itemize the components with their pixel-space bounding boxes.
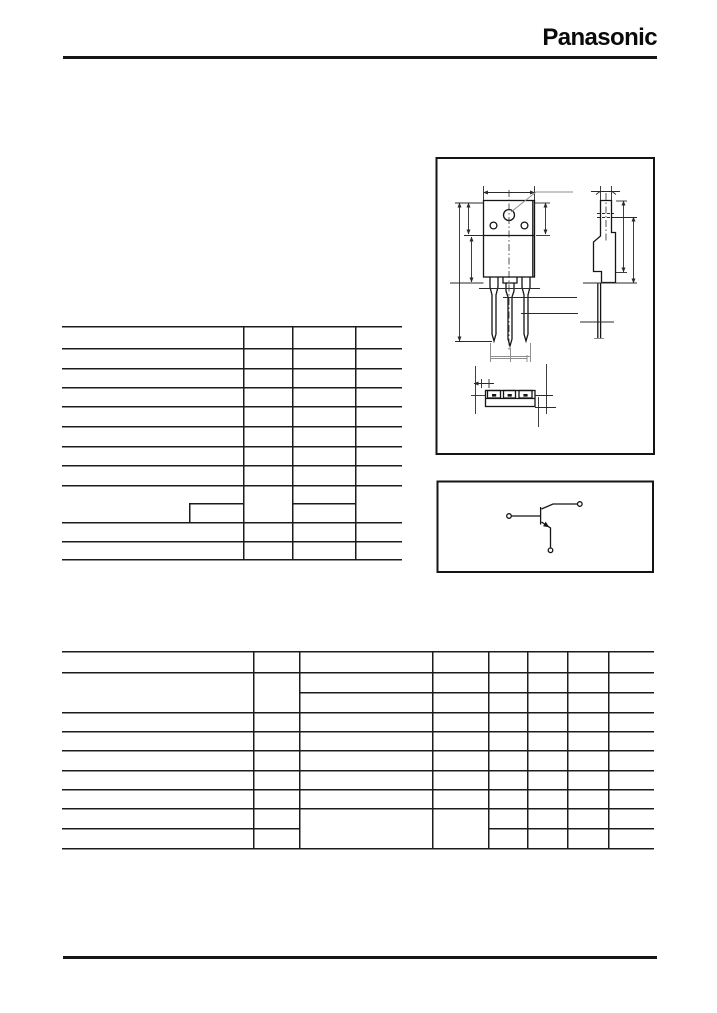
- datasheet-page: Panasonic: [0, 0, 717, 1013]
- lead-3: [522, 277, 530, 341]
- package-side-view: [580, 186, 637, 339]
- page-graphics: [0, 0, 717, 1013]
- schematic-border: [438, 482, 654, 573]
- package-body: [484, 201, 535, 278]
- absolute-maximum-ratings-table: [62, 327, 402, 560]
- collector-lead-line: [542, 504, 578, 509]
- base-terminal: [507, 514, 512, 519]
- electrical-characteristics-table: [62, 652, 654, 849]
- center-boss: [503, 277, 517, 283]
- package-bottom-view: [471, 355, 556, 427]
- emitter-terminal: [548, 548, 553, 553]
- left-hole-icon: [490, 222, 497, 229]
- lead-2: [506, 283, 514, 346]
- figure-border: [437, 158, 655, 454]
- hole-leader-line: [511, 192, 573, 212]
- package-dimensions-figure: [437, 158, 655, 454]
- internal-connection-figure: [438, 482, 654, 573]
- right-hole-icon: [521, 222, 528, 229]
- npn-transistor-symbol: [507, 502, 582, 553]
- package-front-view: [450, 186, 578, 362]
- lead-1: [490, 277, 498, 341]
- side-profile: [594, 201, 616, 283]
- collector-terminal: [578, 502, 583, 507]
